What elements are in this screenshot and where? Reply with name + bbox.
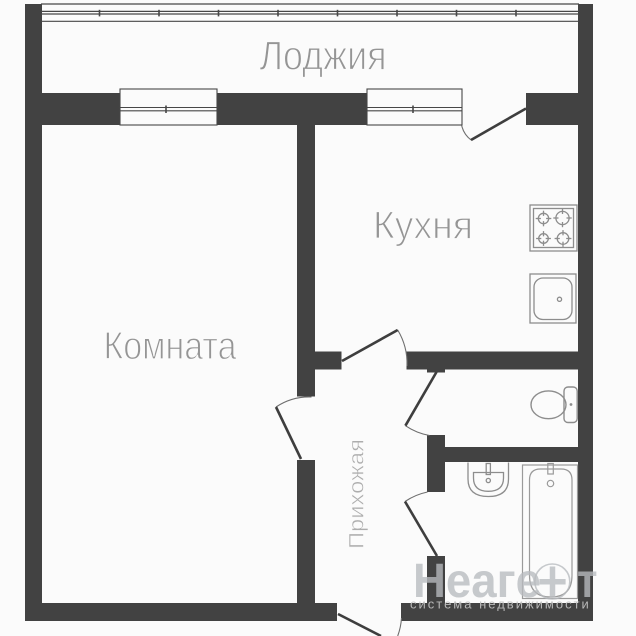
svg-text:Комната: Комната: [104, 325, 237, 368]
svg-text:Кухня: Кухня: [373, 205, 473, 248]
svg-text:Лоджия: Лоджия: [260, 33, 387, 79]
svg-text:Прихожая: Прихожая: [345, 439, 369, 549]
svg-text:система недвижимости: система недвижимости: [410, 597, 591, 612]
